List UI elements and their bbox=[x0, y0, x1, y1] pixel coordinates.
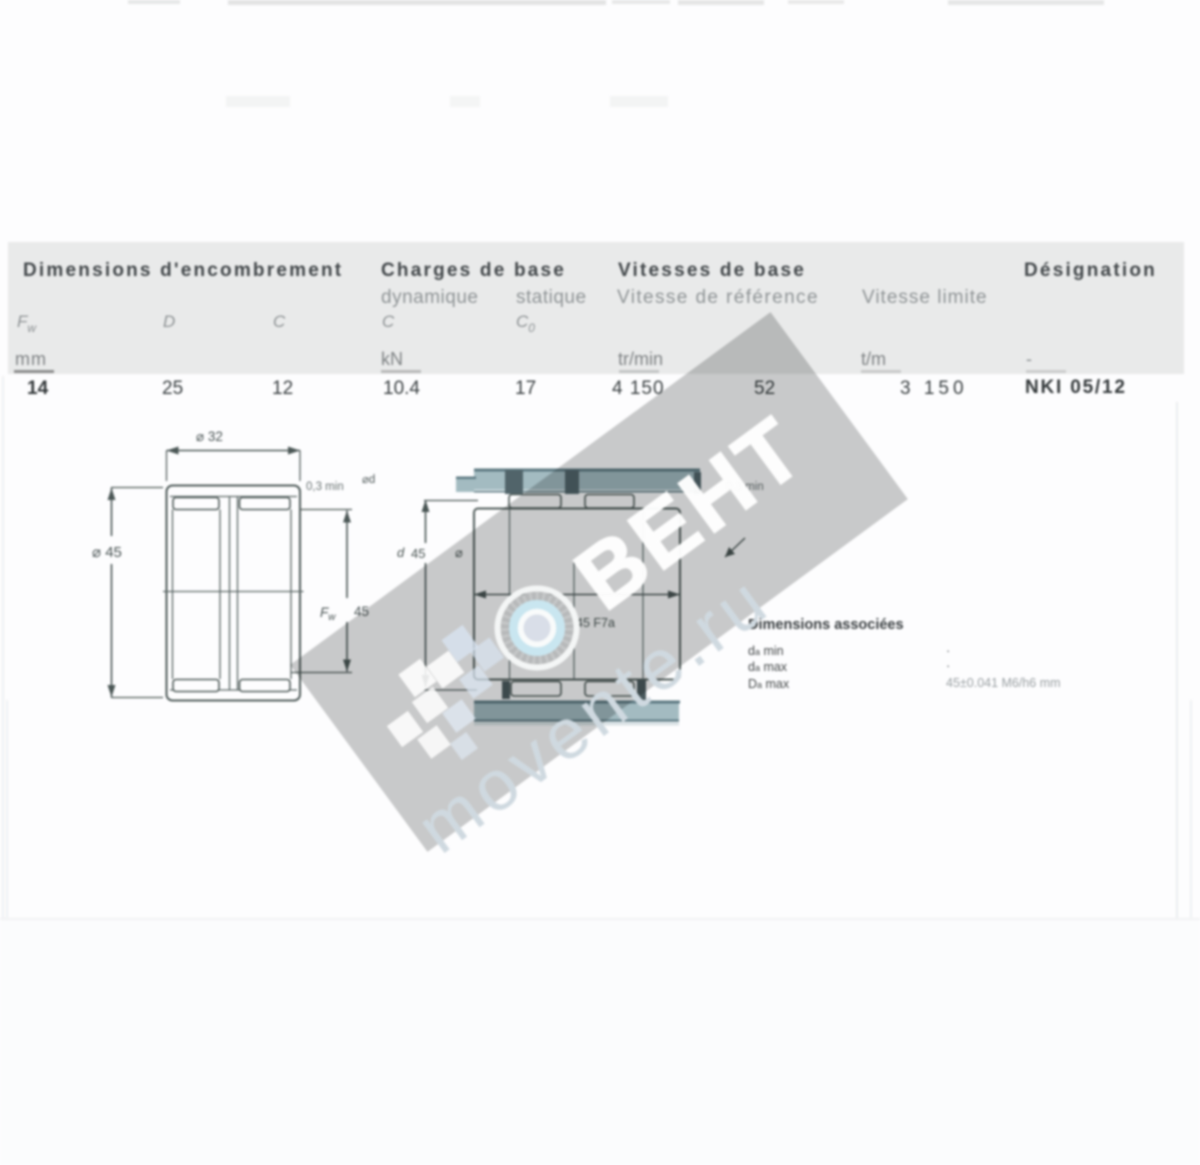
svg-text:0,3 min: 0,3 min bbox=[306, 481, 344, 493]
svg-text:d: d bbox=[397, 545, 405, 560]
svg-text:⌀ 32: ⌀ 32 bbox=[196, 429, 223, 444]
svg-text:⌀d: ⌀d bbox=[362, 474, 375, 486]
svg-text:⌀ 45: ⌀ 45 bbox=[92, 544, 122, 561]
svg-text:Fw: Fw bbox=[320, 605, 336, 623]
svg-text:45: 45 bbox=[411, 546, 425, 561]
